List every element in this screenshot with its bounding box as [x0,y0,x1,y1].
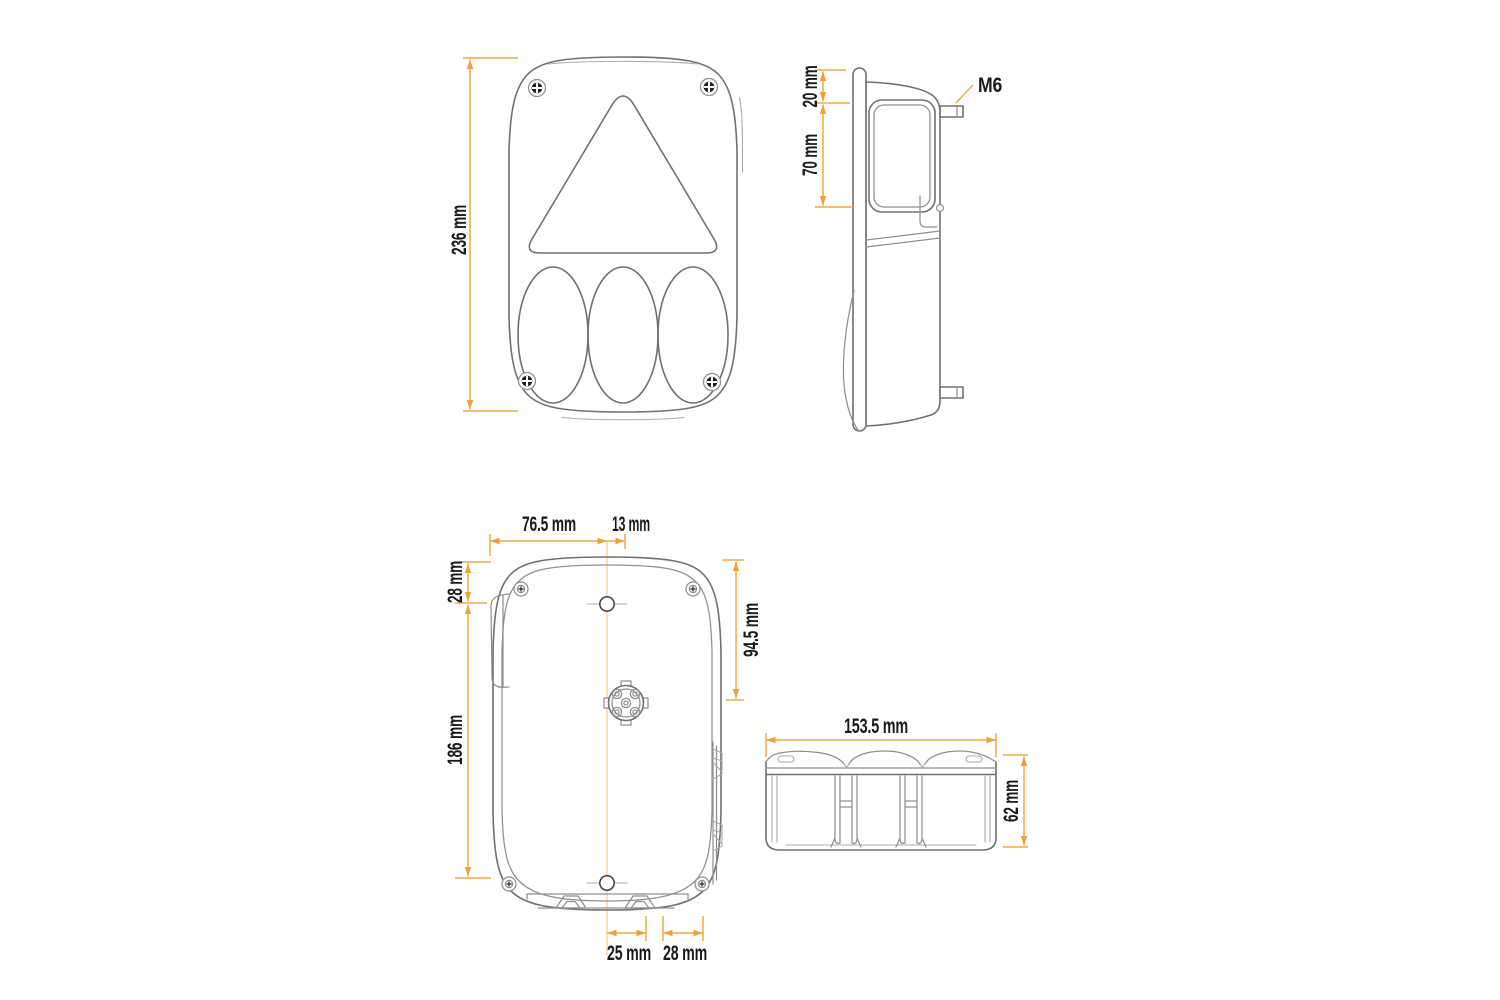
dim-label-rear-height: 186 mm [444,715,467,765]
screw-icon [686,582,700,596]
front-view: 236 mm [448,57,743,420]
side-body-outline [866,82,940,426]
screw-icon [695,877,709,891]
screw-icon [519,373,536,390]
screw-icon [529,80,546,97]
technical-drawing-sheet: 236 mm M6 20 mm 70 mm [0,0,1500,1000]
dim-label-rear-top: 28 mm [444,561,467,603]
dimension-rear-right: 94.5 mm [722,560,763,700]
mounting-hole-bottom [587,876,627,890]
front-lamp-outline [509,57,737,412]
dimension-front-height: 236 mm [448,58,518,411]
dimension-rear-bottom: 25 mm 28 mm [607,916,707,965]
dim-label-rear-offset: 13 mm [612,513,650,536]
rear-view: 76.5 mm 13 mm 28 mm 186 mm 94.5 mm 25 mm… [444,513,763,965]
corner-slot-right [966,756,982,762]
dim-label-rear-width-left: 76.5 mm [522,513,576,536]
dim-label-side-window: 70 mm [799,134,822,176]
dimension-rear-top: 76.5 mm 13 mm [490,513,650,556]
dim-label-front-height: 236 mm [448,205,471,255]
connector-socket [604,681,648,725]
screw-icon [704,374,721,391]
lens-scallops [766,751,996,764]
m6-stud-label: M6 [978,74,1002,97]
dimension-extension-lines [646,916,703,941]
corner-slot-left [778,756,794,762]
drawing-svg: 236 mm M6 20 mm 70 mm [0,0,1500,1000]
front-side-tab-line [740,98,743,172]
mounting-stud-top [940,106,963,117]
dim-label-rear-right: 94.5 mm [740,603,763,657]
screw-icon [701,79,718,96]
dimension-extension-lines [490,534,625,556]
clip-channel-pair [896,776,926,847]
m6-leader-line [956,85,973,103]
bottom-clip-right [625,896,655,908]
side-clip-pin [937,205,944,212]
dimension-rear-left: 28 mm 186 mm [444,561,491,878]
dim-label-rear-bottom-left: 25 mm [607,942,651,965]
dim-label-bottom-height: 62 mm [1000,780,1023,822]
screw-icon [514,582,528,596]
mounting-hole-top [587,597,627,611]
side-lens-strip [853,68,866,431]
dimension-bottom-height: 62 mm [1000,755,1028,847]
front-bottom-lip-line [562,418,684,420]
clip-channel-pair [831,776,861,847]
end-inner-lines [772,776,990,842]
mounting-stud-bottom [940,387,963,398]
bottom-view: 153.5 mm 62 mm [766,715,1028,850]
dim-label-rear-bottom-right: 28 mm [663,942,707,965]
dim-label-bottom-width: 153.5 mm [844,715,908,738]
screw-icon [502,877,516,891]
scallop-notches [844,764,925,768]
dim-label-side-top: 20 mm [799,66,822,108]
dimension-side-offsets: 20 mm 70 mm [799,66,853,208]
side-view: M6 20 mm 70 mm [799,66,1002,432]
